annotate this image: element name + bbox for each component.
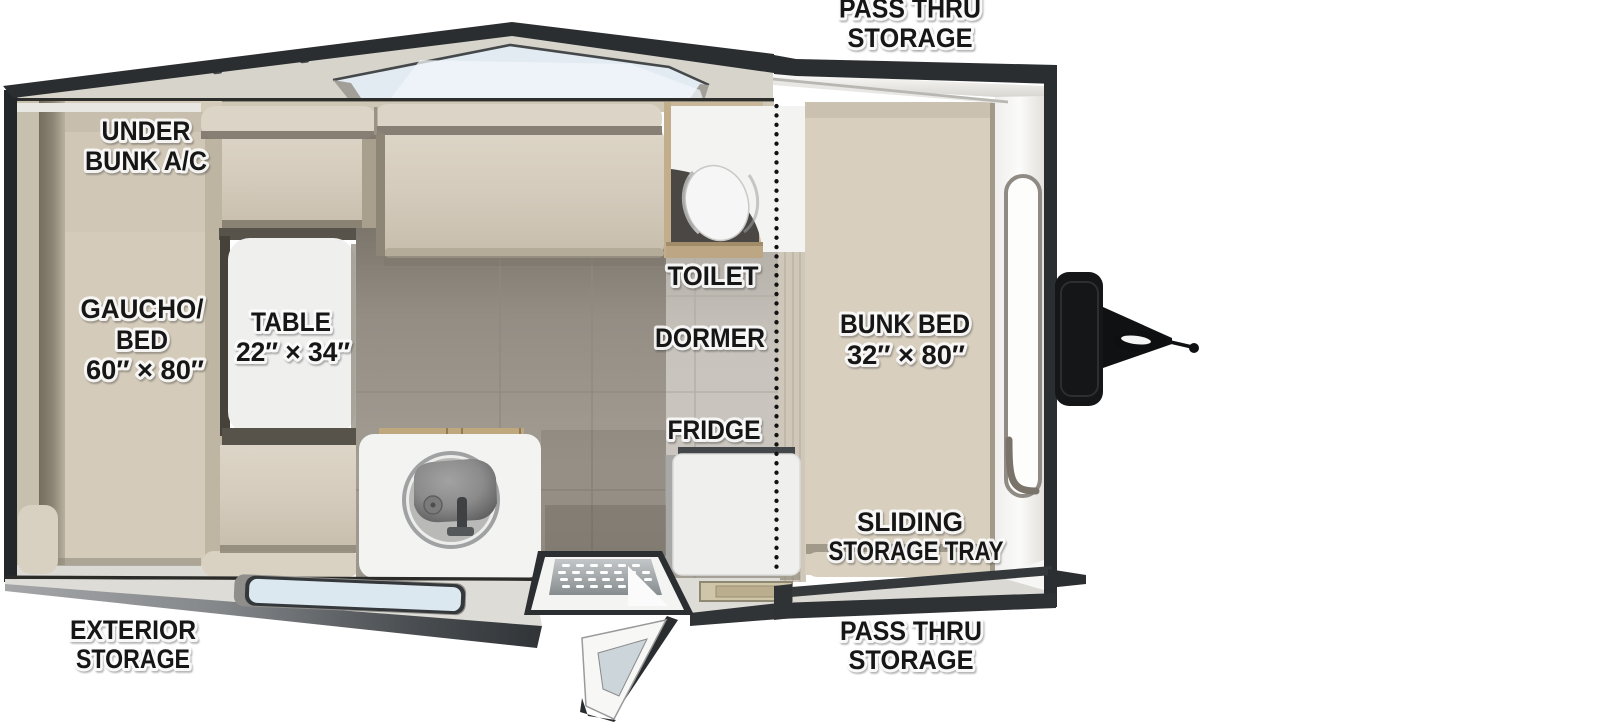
svg-text:STORAGE: STORAGE: [848, 23, 973, 53]
svg-text:SLIDING: SLIDING: [857, 507, 963, 537]
svg-text:GAUCHO/: GAUCHO/: [81, 294, 204, 324]
svg-text:FRIDGE: FRIDGE: [668, 415, 761, 445]
svg-text:BED: BED: [116, 325, 168, 355]
svg-text:UNDER: UNDER: [102, 116, 191, 146]
svg-text:PASS THRU: PASS THRU: [840, 616, 982, 646]
svg-text:STORAGE: STORAGE: [76, 644, 190, 674]
svg-text:STORAGE: STORAGE: [849, 645, 974, 675]
svg-text:STORAGE TRAY: STORAGE TRAY: [829, 536, 1004, 566]
svg-text:DORMER: DORMER: [655, 323, 765, 353]
svg-text:60″ × 80″: 60″ × 80″: [86, 355, 204, 385]
svg-text:BUNK A/C: BUNK A/C: [85, 146, 207, 176]
svg-text:22″ × 34″: 22″ × 34″: [236, 337, 350, 367]
svg-text:TOILET: TOILET: [668, 261, 759, 291]
svg-text:PASS THRU: PASS THRU: [839, 0, 981, 24]
svg-text:BUNK BED: BUNK BED: [840, 309, 970, 339]
svg-text:32″ × 80″: 32″ × 80″: [847, 340, 965, 370]
svg-text:EXTERIOR: EXTERIOR: [70, 615, 196, 645]
svg-text:TABLE: TABLE: [251, 307, 331, 337]
